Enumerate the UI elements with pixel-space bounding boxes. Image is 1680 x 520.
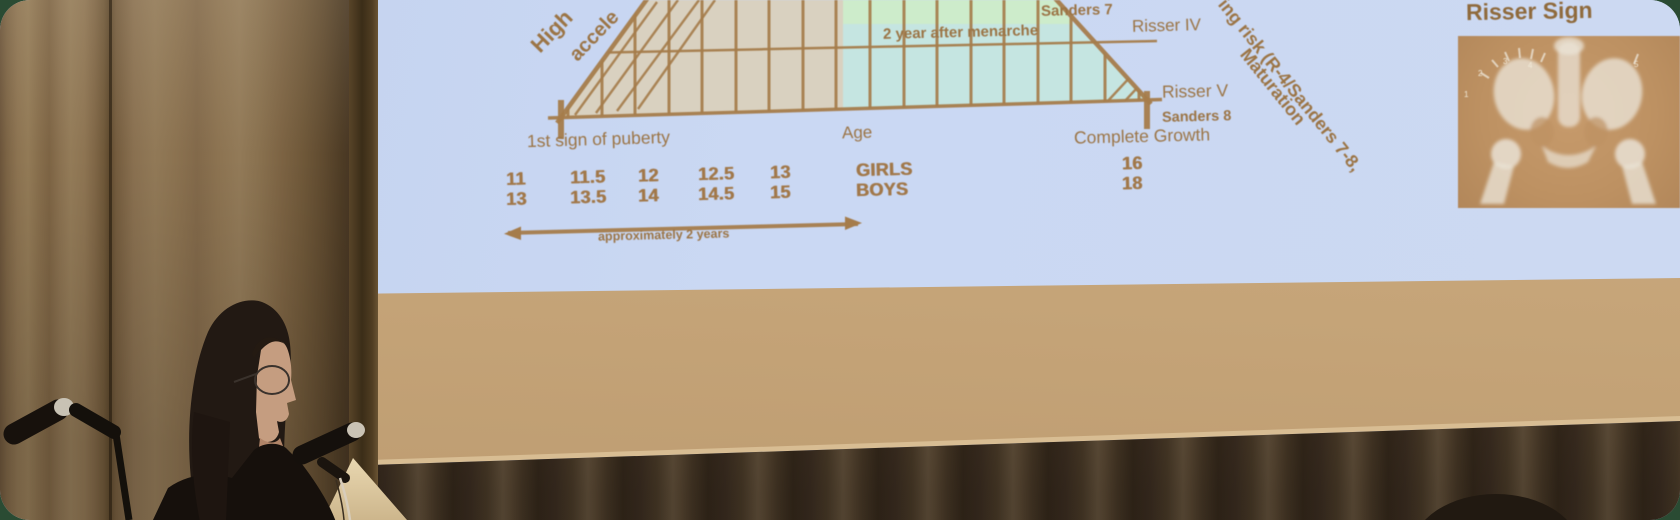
girls-end-age: 16: [1122, 154, 1143, 173]
mic-body: [302, 432, 352, 455]
label-menarche: 2 year after menarche: [883, 23, 1038, 42]
pelvis-xray-image: 1 2 3 4 5: [1458, 36, 1680, 208]
label-risser-iv: Risser IV: [1132, 16, 1201, 35]
mic-clip: [76, 410, 114, 432]
girls-age: 13: [770, 163, 791, 182]
risser-mark: 2: [1478, 70, 1482, 78]
risser-mark: 1: [1464, 91, 1468, 99]
girls-age: 12: [638, 166, 659, 185]
pelvis-bones: [1458, 36, 1680, 208]
risser-mark: 3: [1503, 58, 1507, 66]
mic-stand-pole: [116, 434, 129, 520]
girls-age: 11.5: [570, 167, 606, 186]
risser-mark: 5: [1634, 61, 1638, 69]
mic-silver-band: [347, 422, 365, 438]
label-complete-growth: Complete Growth: [1074, 126, 1211, 147]
conference-photo: High accele Sanders 7 2 year after menar…: [0, 0, 1680, 520]
boys-end-age: 18: [1122, 174, 1143, 193]
label-sanders-7: Sanders 7: [1041, 2, 1113, 19]
girls-row-label: GIRLS: [856, 160, 913, 179]
presenter-hair-back: [192, 412, 230, 520]
label-first-sign: 1st sign of puberty: [527, 129, 670, 151]
boys-age: 14: [638, 186, 659, 205]
boys-age: 13: [506, 189, 527, 208]
mic-body: [14, 410, 58, 434]
risser-mark: 4: [1528, 62, 1532, 70]
boys-row-label: BOYS: [856, 180, 909, 199]
label-sanders-8: Sanders 8: [1162, 109, 1232, 125]
label-approx-2-years: approximately 2 years: [598, 227, 730, 243]
boys-age: 13.5: [570, 187, 607, 206]
boys-age: 15: [770, 183, 791, 202]
slide-title: Risser Sign: [1466, 0, 1593, 24]
label-risser-v: Risser V: [1162, 82, 1229, 101]
mic-clip: [322, 462, 345, 478]
girls-age: 11: [506, 170, 526, 188]
boys-age: 14.5: [698, 184, 735, 203]
girls-age: 12.5: [698, 164, 735, 183]
microphone-stand-left: [0, 350, 170, 520]
microphone-presenter: [270, 390, 390, 520]
label-age-axis: Age: [842, 124, 873, 142]
